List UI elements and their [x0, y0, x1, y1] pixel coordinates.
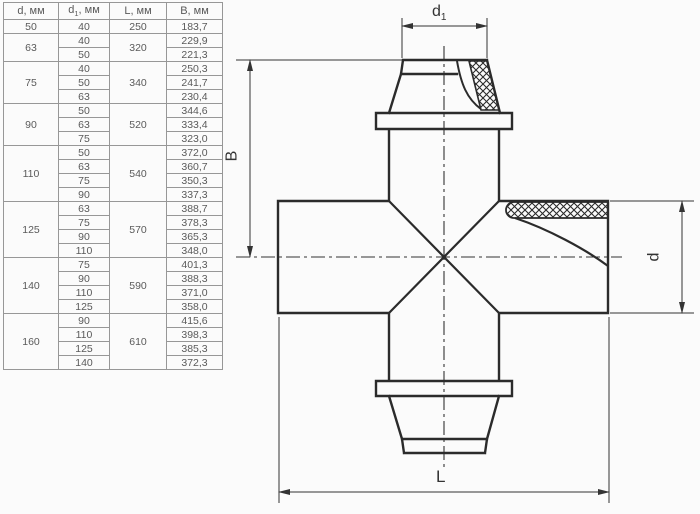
page-canvas: d, ммd1, ммL, ммB, мм 5040250183,7634032…	[0, 0, 700, 514]
dim-label-d1-sub: 1	[441, 12, 447, 23]
right-socket-inner-curve	[515, 218, 608, 266]
dim-label-b: B	[224, 151, 240, 162]
dim-label-d: d	[646, 253, 662, 262]
dim-label-d1-base: d	[432, 3, 441, 20]
dim-label-d1: d1	[432, 4, 446, 23]
cross-fitting-drawing	[0, 0, 700, 514]
right-socket-seal-hatch	[506, 202, 608, 218]
dim-label-l: L	[436, 468, 445, 485]
